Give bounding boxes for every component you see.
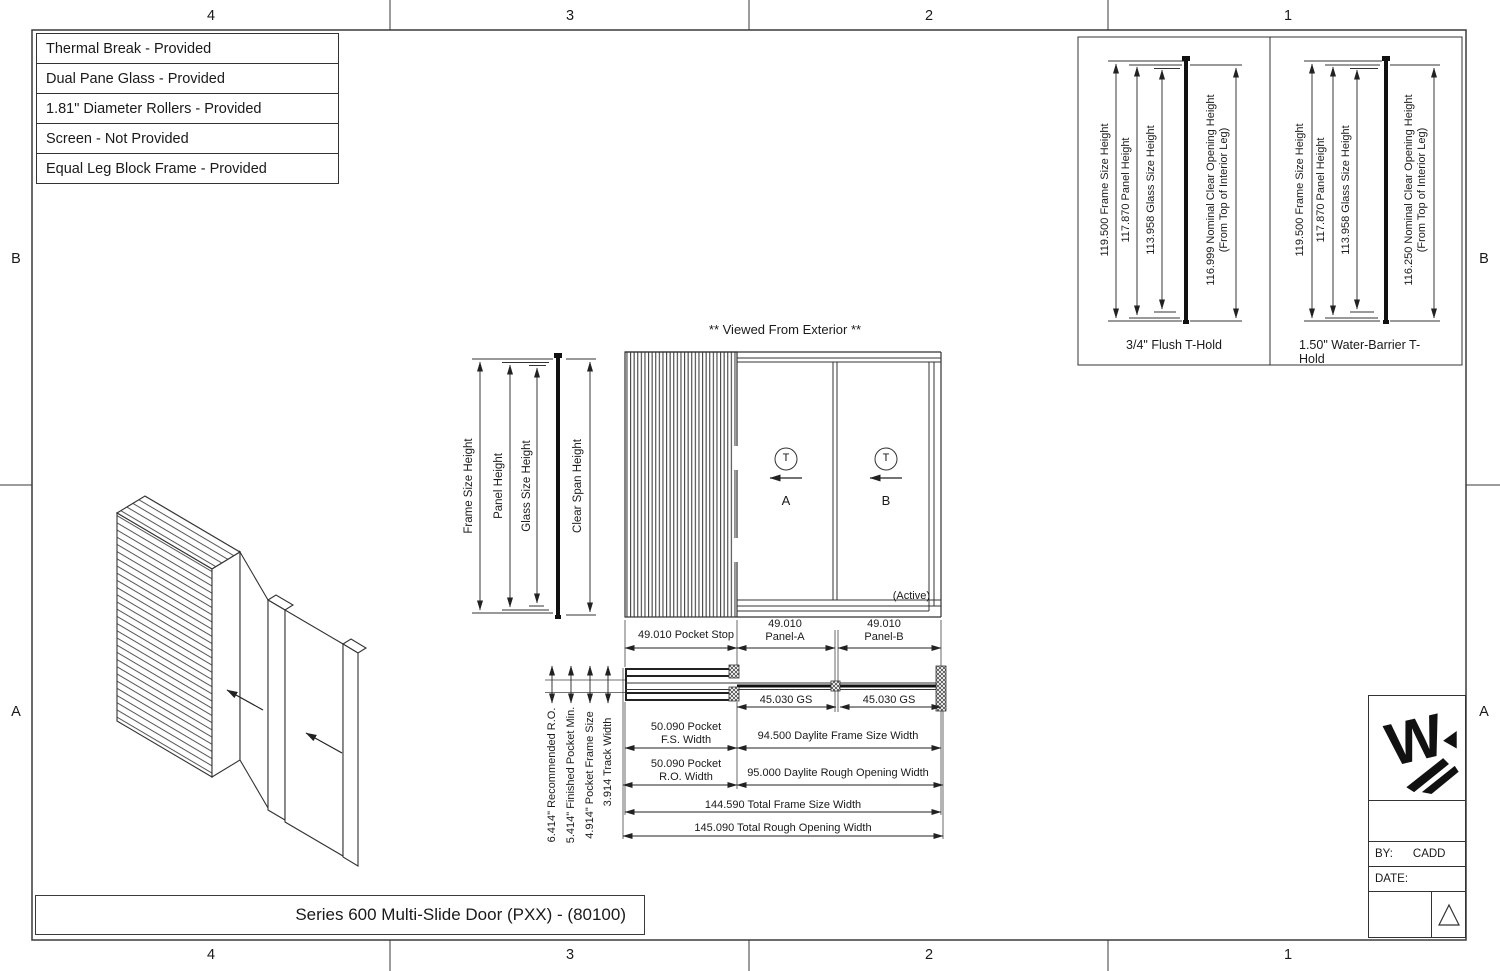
dim-panel-b-name: Panel-B <box>864 631 903 644</box>
isometric-view <box>117 496 366 866</box>
revision-cell <box>1431 892 1465 937</box>
panel-b-label: B <box>882 494 891 507</box>
dim-track-width: 3.914 Track Width <box>602 718 614 807</box>
zone-label-right-a: A <box>1479 704 1489 720</box>
title-block-empty-cell <box>1369 801 1465 842</box>
company-logo-icon: W <box>1373 702 1461 794</box>
dim-clear-opening-1-value: 116.999 Nominal Clear Opening Height <box>1205 94 1218 285</box>
title-bar: Series 600 Multi-Slide Door (PXX) - (801… <box>35 895 645 935</box>
dim-pocket-ro-2: R.O. Width <box>659 771 713 784</box>
drawing-sheet: 4 3 2 1 4 3 2 1 B A B A Thermal Break - … <box>0 0 1500 971</box>
by-row: BY: CADD <box>1369 842 1465 867</box>
zone-label-bottom-3: 3 <box>566 947 574 963</box>
zone-label-top-4: 4 <box>207 8 215 24</box>
zone-label-bottom-4: 4 <box>207 947 215 963</box>
zone-label-left-b: B <box>11 251 21 267</box>
zone-label-top-1: 1 <box>1284 8 1292 24</box>
zone-label-bottom-1: 1 <box>1284 947 1292 963</box>
feature-row-rollers: 1.81" Diameter Rollers - Provided <box>37 94 338 124</box>
dim-pocket-fs-2: F.S. Width <box>661 734 711 747</box>
plan-depth-dims <box>545 666 625 703</box>
dim-label-clear-span-height: Clear Span Height <box>572 439 584 533</box>
dim-clear-opening-2-value: 116.250 Nominal Clear Opening Height <box>1403 94 1416 285</box>
dim-daylite-ro: 95.000 Daylite Rough Opening Width <box>747 767 929 780</box>
dim-clear-opening-2: 116.250 Nominal Clear Opening Height (Fr… <box>1403 94 1429 285</box>
dim-total-fs: 144.590 Total Frame Size Width <box>705 799 861 812</box>
dim-label-panel-height: Panel Height <box>493 453 505 519</box>
dim-label-frame-size-height: Frame Size Height <box>463 438 475 533</box>
feature-row-dual-pane: Dual Pane Glass - Provided <box>37 64 338 94</box>
revision-row <box>1369 892 1465 937</box>
view-title: ** Viewed From Exterior ** <box>709 323 861 336</box>
date-label: DATE: <box>1375 873 1408 885</box>
dim-frame-size-height-1: 119.500 Frame Size Height <box>1099 123 1111 256</box>
date-row: DATE: <box>1369 867 1465 892</box>
dim-clear-opening-2-note: (From Top of Interior Leg) <box>1416 94 1429 285</box>
zone-label-right-b: B <box>1479 251 1489 267</box>
title-block: W BY: CADD DATE: <box>1368 695 1466 938</box>
feature-row-screen: Screen - Not Provided <box>37 124 338 154</box>
zone-label-left-a: A <box>11 704 21 720</box>
panel-b-symbol: T <box>883 452 890 465</box>
dim-gs-b: 45.030 GS <box>863 694 916 707</box>
dim-panel-a-name: Panel-A <box>765 631 804 644</box>
drawing-title: Series 600 Multi-Slide Door (PXX) - (801… <box>295 905 626 925</box>
detail-view-1-caption: 3/4" Flush T-Hold <box>1126 338 1222 352</box>
dim-glass-height-2: 113.958 Glass Size Height <box>1340 125 1352 254</box>
dim-panel-height-1: 117.870 Panel Height <box>1120 138 1132 243</box>
dim-daylite-fs: 94.500 Daylite Frame Size Width <box>758 730 919 743</box>
dim-recommended-ro: 6.414" Recommended R.O. <box>546 708 558 843</box>
panel-a-label: A <box>782 494 791 507</box>
dim-glass-height-1: 113.958 Glass Size Height <box>1145 125 1157 254</box>
dim-gs-a: 45.030 GS <box>760 694 813 707</box>
dim-total-ro: 145.090 Total Rough Opening Width <box>694 822 871 835</box>
by-label: BY: <box>1375 848 1393 860</box>
dim-panel-b-value: 49.010 <box>867 618 901 631</box>
dim-pocket-ro-1: 50.090 Pocket <box>651 758 721 771</box>
revision-triangle-icon <box>1437 903 1461 927</box>
dim-clear-opening-1: 116.999 Nominal Clear Opening Height (Fr… <box>1205 94 1231 285</box>
elevation-lines <box>625 352 941 617</box>
panel-a-symbol: T <box>783 452 790 465</box>
zone-label-bottom-2: 2 <box>925 947 933 963</box>
dim-pocket-stop: 49.010 Pocket Stop <box>638 629 734 642</box>
active-note: (Active) <box>893 590 930 603</box>
feature-row-block-frame: Equal Leg Block Frame - Provided <box>37 154 338 183</box>
dim-pocket-frame: 4.914" Pocket Frame Size <box>584 711 596 838</box>
logo-cell: W <box>1369 696 1465 801</box>
feature-row-thermal-break: Thermal Break - Provided <box>37 34 338 64</box>
dim-label-glass-size-height: Glass Size Height <box>521 440 533 531</box>
dim-frame-size-height-2: 119.500 Frame Size Height <box>1294 123 1306 256</box>
dim-clear-opening-1-note: (From Top of Interior Leg) <box>1218 94 1231 285</box>
zone-label-top-3: 3 <box>566 8 574 24</box>
dim-finished-pocket: 5.414" Finished Pocket Min. <box>565 707 577 844</box>
dim-panel-height-2: 117.870 Panel Height <box>1315 138 1327 243</box>
feature-table: Thermal Break - Provided Dual Pane Glass… <box>36 33 339 184</box>
detail-view-2-caption: 1.50" Water-Barrier T-Hold <box>1299 338 1433 366</box>
dim-panel-a-value: 49.010 <box>768 618 802 631</box>
by-value: CADD <box>1413 848 1446 860</box>
dim-pocket-fs-1: 50.090 Pocket <box>651 721 721 734</box>
zone-label-top-2: 2 <box>925 8 933 24</box>
